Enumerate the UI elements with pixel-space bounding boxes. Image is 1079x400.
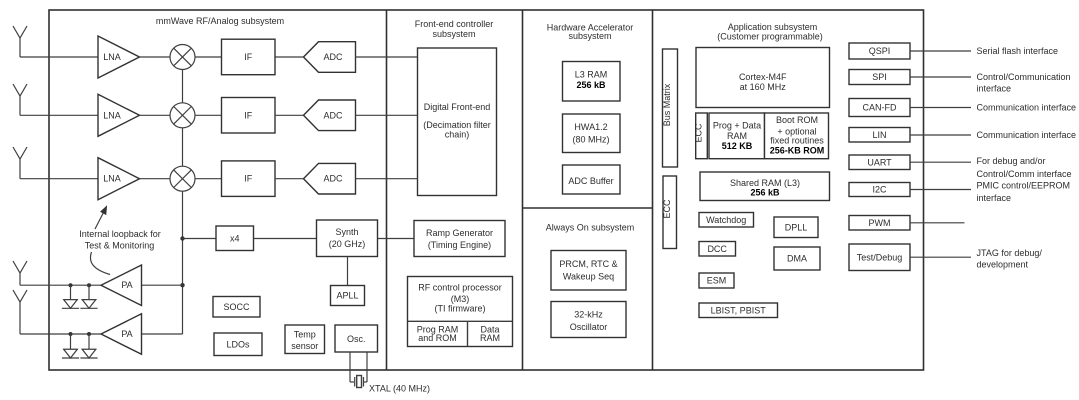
svg-text:XTAL (40 MHz): XTAL (40 MHz) bbox=[369, 384, 430, 394]
svg-text:UART: UART bbox=[867, 158, 892, 168]
svg-text:Bus Matrix: Bus Matrix bbox=[662, 83, 672, 126]
svg-text:QSPI: QSPI bbox=[869, 46, 891, 56]
svg-text:interface: interface bbox=[977, 84, 1012, 94]
svg-text:(80 MHz): (80 MHz) bbox=[572, 135, 609, 145]
svg-text:RAM: RAM bbox=[727, 131, 747, 141]
svg-text:ADC: ADC bbox=[323, 110, 343, 120]
svg-text:L3 RAM: L3 RAM bbox=[575, 70, 608, 80]
svg-text:PA: PA bbox=[121, 280, 132, 290]
svg-text:256 kB: 256 kB bbox=[576, 80, 606, 90]
svg-text:HWA1.2: HWA1.2 bbox=[574, 122, 607, 132]
svg-text:Digital Front-end: Digital Front-end bbox=[424, 102, 491, 112]
svg-text:Temp: Temp bbox=[294, 330, 316, 340]
svg-text:Prog + Data: Prog + Data bbox=[713, 120, 761, 130]
svg-text:256-KB ROM: 256-KB ROM bbox=[770, 145, 825, 155]
svg-text:Internal loopback for: Internal loopback for bbox=[79, 229, 161, 239]
svg-text:SOCC: SOCC bbox=[223, 302, 250, 312]
svg-text:Communication interface: Communication interface bbox=[977, 103, 1077, 113]
svg-text:subsystem: subsystem bbox=[568, 31, 611, 41]
svg-text:PRCM, RTC &: PRCM, RTC & bbox=[559, 259, 617, 269]
svg-text:512 KB: 512 KB bbox=[722, 141, 753, 151]
svg-text:APLL: APLL bbox=[336, 291, 358, 301]
svg-text:32-kHz: 32-kHz bbox=[574, 310, 603, 320]
svg-text:CAN-FD: CAN-FD bbox=[863, 103, 897, 113]
svg-text:Communication interface: Communication interface bbox=[977, 130, 1077, 140]
svg-text:and ROM: and ROM bbox=[418, 333, 457, 343]
svg-text:Oscillator: Oscillator bbox=[570, 322, 608, 332]
svg-text:(Timing Engine): (Timing Engine) bbox=[428, 240, 491, 250]
svg-text:DCC: DCC bbox=[707, 244, 727, 254]
svg-text:ESM: ESM bbox=[707, 276, 727, 286]
svg-text:ADC: ADC bbox=[323, 52, 343, 62]
svg-text:JTAG for debug/: JTAG for debug/ bbox=[977, 248, 1043, 258]
svg-text:at 160 MHz: at 160 MHz bbox=[740, 82, 787, 92]
svg-text:SPI: SPI bbox=[872, 72, 887, 82]
svg-text:PWM: PWM bbox=[869, 218, 891, 228]
svg-text:Control/Communication: Control/Communication bbox=[977, 72, 1071, 82]
svg-text:DPLL: DPLL bbox=[785, 223, 808, 233]
svg-text:Cortex-M4F: Cortex-M4F bbox=[739, 72, 787, 82]
svg-text:fixed routines: fixed routines bbox=[770, 136, 824, 146]
svg-text:LDOs: LDOs bbox=[226, 340, 250, 350]
svg-text:interface: interface bbox=[977, 193, 1012, 203]
svg-text:DMA: DMA bbox=[787, 254, 807, 264]
svg-text:LBIST, PBIST: LBIST, PBIST bbox=[711, 306, 767, 316]
svg-text:LIN: LIN bbox=[872, 130, 886, 140]
svg-text:Wakeup Seq: Wakeup Seq bbox=[563, 272, 614, 282]
svg-text:chain): chain) bbox=[445, 129, 470, 139]
svg-text:Always On subsystem: Always On subsystem bbox=[546, 223, 635, 233]
svg-text:Serial flash interface: Serial flash interface bbox=[977, 46, 1059, 56]
svg-text:sensor: sensor bbox=[291, 341, 318, 351]
svg-text:Control/Comm interface: Control/Comm interface bbox=[977, 169, 1072, 179]
svg-text:256 kB: 256 kB bbox=[750, 187, 780, 197]
svg-text:RF control processor: RF control processor bbox=[418, 282, 502, 292]
svg-text:Application subsystem: Application subsystem bbox=[728, 22, 818, 32]
svg-text:ADC: ADC bbox=[323, 174, 343, 184]
svg-text:Osc.: Osc. bbox=[347, 334, 366, 344]
svg-text:subsystem: subsystem bbox=[432, 29, 475, 39]
svg-text:LNA: LNA bbox=[103, 110, 121, 120]
svg-text:IF: IF bbox=[244, 174, 253, 184]
svg-text:(Customer programmable): (Customer programmable) bbox=[717, 32, 823, 42]
svg-text:I2C: I2C bbox=[872, 185, 887, 195]
svg-text:(20 GHz): (20 GHz) bbox=[329, 239, 366, 249]
svg-text:ECC: ECC bbox=[694, 123, 704, 143]
svg-text:IF: IF bbox=[244, 110, 253, 120]
svg-text:Synth: Synth bbox=[335, 227, 358, 237]
svg-text:For debug and/or: For debug and/or bbox=[977, 156, 1046, 166]
svg-text:Ramp Generator: Ramp Generator bbox=[426, 228, 493, 238]
svg-text:Front-end controller: Front-end controller bbox=[415, 19, 494, 29]
svg-text:Boot ROM: Boot ROM bbox=[776, 115, 818, 125]
svg-text:(TI firmware): (TI firmware) bbox=[435, 304, 486, 314]
svg-text:PA: PA bbox=[121, 329, 132, 339]
svg-text:x4: x4 bbox=[230, 234, 240, 244]
svg-text:(M3): (M3) bbox=[451, 294, 470, 304]
svg-text:PMIC control/EEPROM: PMIC control/EEPROM bbox=[977, 181, 1071, 191]
svg-text:LNA: LNA bbox=[103, 52, 121, 62]
svg-text:Test/Debug: Test/Debug bbox=[857, 253, 903, 263]
svg-text:mmWave RF/Analog subsystem: mmWave RF/Analog subsystem bbox=[156, 16, 284, 26]
svg-text:IF: IF bbox=[244, 52, 253, 62]
svg-text:Watchdog: Watchdog bbox=[706, 215, 746, 225]
svg-text:ADC Buffer: ADC Buffer bbox=[568, 176, 613, 186]
svg-text:ECC: ECC bbox=[662, 199, 672, 219]
svg-text:Test & Monitoring: Test & Monitoring bbox=[85, 241, 155, 251]
svg-text:RAM: RAM bbox=[480, 333, 500, 343]
svg-text:development: development bbox=[977, 260, 1029, 270]
svg-text:LNA: LNA bbox=[103, 174, 121, 184]
